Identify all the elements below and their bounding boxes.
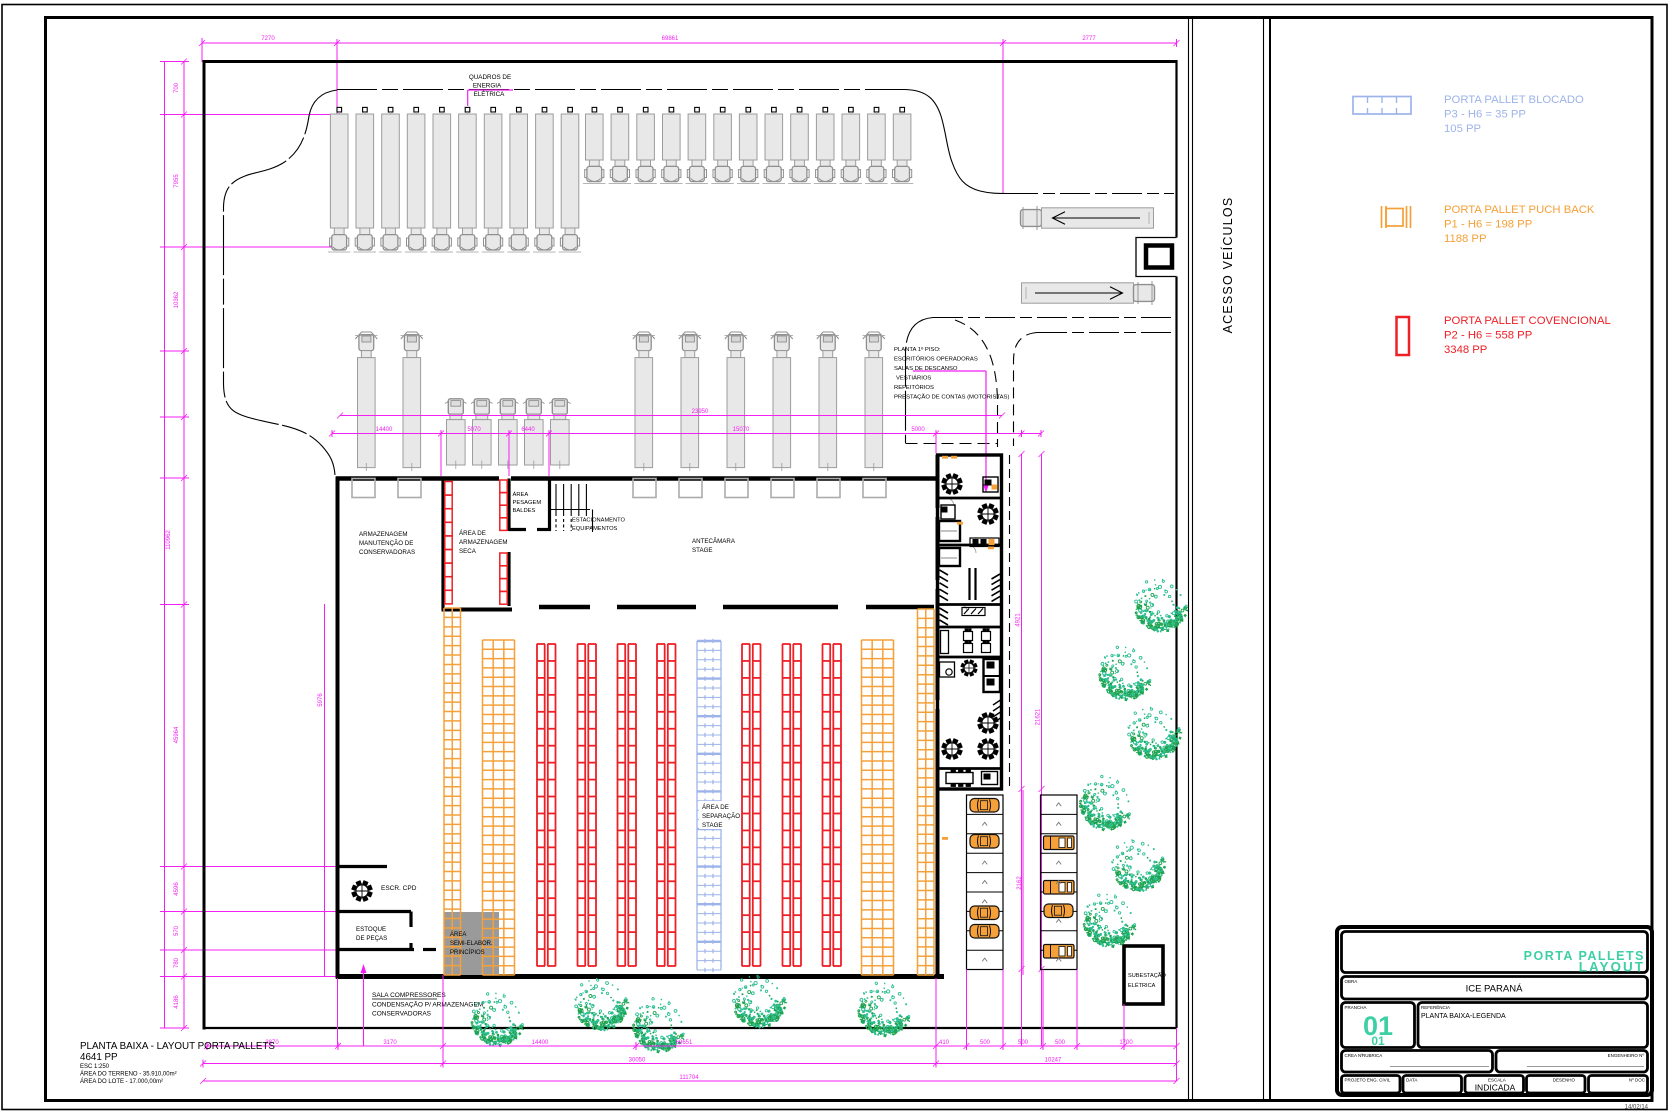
svg-text:410: 410 <box>939 1040 950 1046</box>
svg-text:500: 500 <box>980 1040 991 1046</box>
svg-text:DATA: DATA <box>1406 1078 1417 1083</box>
svg-text:ÁREA DO LOTE - 17.000,00m²: ÁREA DO LOTE - 17.000,00m² <box>80 1078 163 1085</box>
svg-text:REFEITÓRIOS: REFEITÓRIOS <box>894 384 934 391</box>
svg-text:P2 - H6 = 558 PP: P2 - H6 = 558 PP <box>1444 330 1532 342</box>
svg-text:4921: 4921 <box>1016 613 1022 627</box>
svg-text:PORTA PALLET COVENCIONAL: PORTA PALLET COVENCIONAL <box>1444 315 1611 327</box>
svg-text:SECA: SECA <box>459 548 477 555</box>
svg-text:STAGE: STAGE <box>692 547 713 554</box>
svg-text:CONDENSAÇÃO P/ ARMAZENAGEM: CONDENSAÇÃO P/ ARMAZENAGEM <box>372 1000 483 1009</box>
svg-text:PROJETO ENG. CIVIL: PROJETO ENG. CIVIL <box>1345 1078 1391 1083</box>
svg-text:500: 500 <box>1055 1040 1066 1046</box>
svg-text:PLANTA BAIXA-LEGENDA: PLANTA BAIXA-LEGENDA <box>1421 1013 1506 1020</box>
svg-text:ARMAZENAGEM: ARMAZENAGEM <box>459 539 507 546</box>
svg-text:5070: 5070 <box>467 427 481 433</box>
svg-text:7270: 7270 <box>261 36 275 42</box>
svg-text:6440: 6440 <box>521 427 535 433</box>
svg-text:30050: 30050 <box>629 1058 646 1064</box>
svg-text:LAYOUT: LAYOUT <box>1579 960 1645 975</box>
svg-text:2162: 2162 <box>1017 876 1023 890</box>
svg-text:EQUIPAMENTOS: EQUIPAMENTOS <box>572 526 618 532</box>
svg-text:69861: 69861 <box>662 36 679 42</box>
svg-text:110962: 110962 <box>166 530 172 550</box>
svg-text:ENGENHEIRO Nº: ENGENHEIRO Nº <box>1608 1053 1645 1058</box>
svg-text:10247: 10247 <box>1045 1058 1062 1064</box>
svg-text:SUBESTAÇÃO: SUBESTAÇÃO <box>1128 972 1166 979</box>
svg-text:QUADROS DE: QUADROS DE <box>469 74 511 81</box>
svg-text:21621: 21621 <box>1036 708 1042 725</box>
svg-text:CONSERVADORAS: CONSERVADORAS <box>372 1011 432 1018</box>
svg-text:Nº DOC: Nº DOC <box>1629 1078 1646 1083</box>
svg-text:14400: 14400 <box>532 1040 549 1046</box>
svg-text:ESTOQUE: ESTOQUE <box>356 926 386 933</box>
svg-text:CONSERVADORAS: CONSERVADORAS <box>359 549 415 556</box>
svg-text:INDICADA: INDICADA <box>1475 1083 1516 1093</box>
svg-text:ESTACIONAMENTO: ESTACIONAMENTO <box>572 518 625 524</box>
svg-text:5976: 5976 <box>318 693 324 707</box>
svg-text:SEPARAÇÃO: SEPARAÇÃO <box>702 813 740 820</box>
svg-text:PLANTA BAIXA - LAYOUT PORTA PA: PLANTA BAIXA - LAYOUT PORTA PALLETS <box>80 1041 275 1052</box>
svg-text:700: 700 <box>174 82 180 93</box>
svg-text:PRESTAÇÃO DE CONTAS (MOTORISTA: PRESTAÇÃO DE CONTAS (MOTORISTAS) <box>894 394 1009 401</box>
svg-text:1188 PP: 1188 PP <box>1444 233 1487 245</box>
svg-text:23950: 23950 <box>692 409 709 415</box>
svg-text:570: 570 <box>174 925 180 936</box>
svg-text:VESTIÁRIOS: VESTIÁRIOS <box>896 375 931 382</box>
svg-text:ÁREA: ÁREA <box>450 931 466 938</box>
svg-text:ICE PARANÁ: ICE PARANÁ <box>1466 984 1524 995</box>
svg-text:PESAGEM: PESAGEM <box>513 500 542 506</box>
svg-text:DESENHO: DESENHO <box>1553 1078 1576 1083</box>
svg-text:5000: 5000 <box>911 427 925 433</box>
svg-text:PORTA PALLET PUCH BACK: PORTA PALLET PUCH BACK <box>1444 204 1595 216</box>
svg-text:ELÉTRICA: ELÉTRICA <box>1128 982 1156 989</box>
svg-text:PRINCÍPIOS: PRINCÍPIOS <box>450 949 485 956</box>
svg-text:4641 PP: 4641 PP <box>80 1052 118 1063</box>
svg-text:STAGE: STAGE <box>702 822 723 829</box>
svg-text:ACESSO VEÍCULOS: ACESSO VEÍCULOS <box>1220 197 1235 334</box>
svg-text:ESC 1:250: ESC 1:250 <box>80 1064 110 1070</box>
svg-text:780: 780 <box>174 957 180 968</box>
svg-text:ESCRITÓRIOS OPERADORAS: ESCRITÓRIOS OPERADORAS <box>894 356 978 363</box>
svg-text:105 PP: 105 PP <box>1444 123 1481 135</box>
svg-text:01: 01 <box>1371 1034 1385 1048</box>
svg-text:45964: 45964 <box>174 726 180 743</box>
svg-text:ARMAZENAGEM: ARMAZENAGEM <box>359 531 407 538</box>
svg-text:DE PEÇAS: DE PEÇAS <box>356 935 387 942</box>
svg-text:10362: 10362 <box>174 291 180 308</box>
svg-text:OBRA: OBRA <box>1345 979 1358 984</box>
svg-text:4596: 4596 <box>174 882 180 896</box>
svg-text:ANTECÂMARA: ANTECÂMARA <box>692 538 736 545</box>
svg-text:ÁREA DO TERRENO - 35.910,00m²: ÁREA DO TERRENO - 35.910,00m² <box>80 1071 177 1078</box>
svg-text:69651: 69651 <box>676 1040 693 1046</box>
svg-text:3348 PP: 3348 PP <box>1444 344 1487 356</box>
svg-text:SALA COMPRESSORES: SALA COMPRESSORES <box>372 992 446 999</box>
svg-text:REFERÊNCIA: REFERÊNCIA <box>1421 1003 1450 1010</box>
svg-text:14/02/14: 14/02/14 <box>1625 1105 1649 1111</box>
svg-text:500: 500 <box>1018 1040 1029 1046</box>
svg-text:SEMI-ELABOR.: SEMI-ELABOR. <box>450 941 493 947</box>
svg-text:4186: 4186 <box>174 995 180 1009</box>
svg-text:CREA Nº: CREA Nº <box>1345 1053 1364 1058</box>
svg-text:14400: 14400 <box>376 427 393 433</box>
svg-text:ÁREA: ÁREA <box>513 491 529 498</box>
svg-text:ELÉTRICA: ELÉTRICA <box>474 89 506 98</box>
svg-text:P3 - H6 = 35 PP: P3 - H6 = 35 PP <box>1444 109 1526 121</box>
svg-text:PRANCHA: PRANCHA <box>1345 1005 1367 1010</box>
svg-text:ÁREA DE: ÁREA DE <box>459 530 486 537</box>
svg-text:7955: 7955 <box>174 174 180 188</box>
svg-text:PORTA PALLET BLOCADO: PORTA PALLET BLOCADO <box>1444 94 1584 106</box>
svg-text:SALAS DE DESCANSO: SALAS DE DESCANSO <box>894 366 958 372</box>
svg-text:ESCR. CPD: ESCR. CPD <box>381 885 417 892</box>
svg-text:MANUTENÇÃO DE: MANUTENÇÃO DE <box>359 540 413 547</box>
svg-text:3170: 3170 <box>383 1040 397 1046</box>
svg-text:15070: 15070 <box>733 427 750 433</box>
svg-text:BALDES: BALDES <box>513 508 536 514</box>
svg-text:1700: 1700 <box>1119 1040 1133 1046</box>
svg-text:ENERGIA: ENERGIA <box>473 83 502 90</box>
svg-text:PLANTA 1º PISO:: PLANTA 1º PISO: <box>894 346 941 353</box>
svg-text:ÁREA DE: ÁREA DE <box>702 804 729 811</box>
svg-text:P1 - H6 = 198 PP: P1 - H6 = 198 PP <box>1444 219 1532 231</box>
svg-text:111704: 111704 <box>679 1075 699 1081</box>
svg-text:2777: 2777 <box>1082 36 1096 42</box>
svg-text:RUBRICA: RUBRICA <box>1362 1053 1382 1058</box>
